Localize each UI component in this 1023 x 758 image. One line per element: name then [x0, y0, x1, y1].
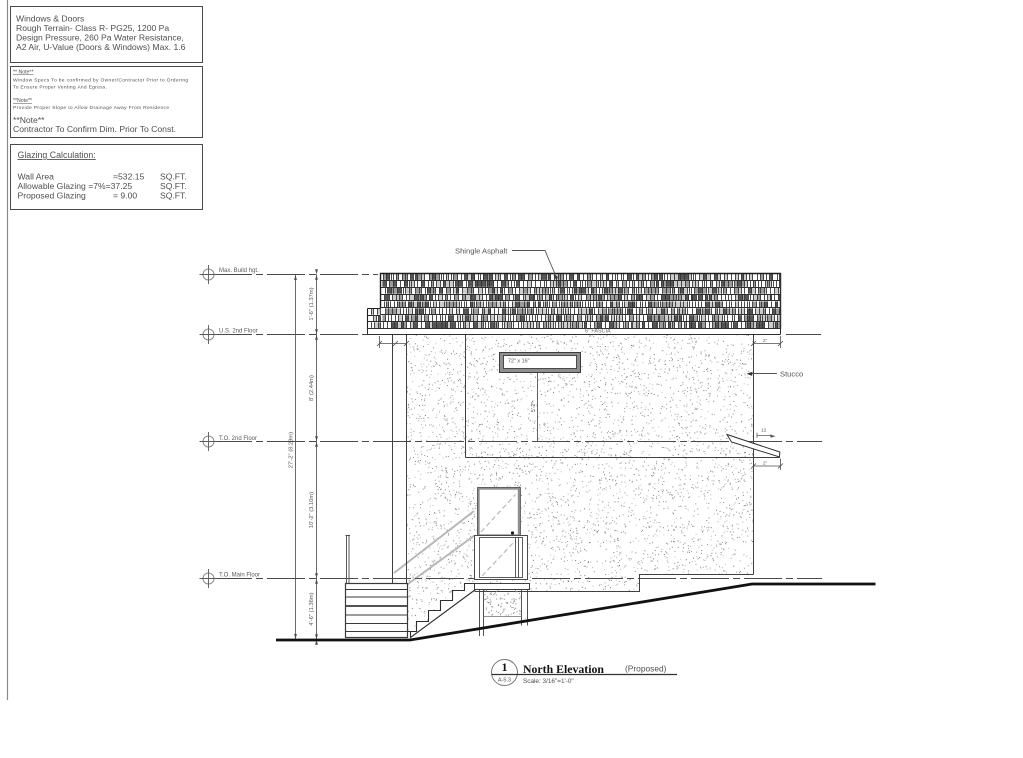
svg-text:Glazing Calculation:: Glazing Calculation:	[18, 150, 96, 160]
svg-text:** Note**: ** Note**	[13, 70, 33, 76]
svg-text:U.S. 2nd Floor: U.S. 2nd Floor	[219, 329, 258, 335]
svg-text:To Ensure Proper Venting And E: To Ensure Proper Venting And Egress.	[13, 85, 107, 91]
svg-text:A2 Air, U-Value (Doors & Windo: A2 Air, U-Value (Doors & Windows) Max. 1…	[16, 42, 186, 52]
svg-text:Windows & Doors: Windows & Doors	[16, 14, 84, 24]
svg-text:SQ.FT.: SQ.FT.	[160, 191, 187, 201]
svg-text:Proposed Glazing: Proposed Glazing	[18, 191, 87, 201]
svg-text:Design Pressure, 260 Pa Water: Design Pressure, 260 Pa Water Resistance…	[16, 33, 184, 43]
svg-text:Max. Build hgt.: Max. Build hgt.	[219, 268, 259, 274]
svg-text:4'-6" (1.36m): 4'-6" (1.36m)	[309, 592, 315, 625]
svg-text:Stucco: Stucco	[780, 370, 803, 379]
svg-text:SQ.FT.: SQ.FT.	[160, 181, 187, 191]
svg-text:8' (2.44m): 8' (2.44m)	[309, 375, 315, 401]
svg-text:5'-2": 5'-2"	[531, 402, 537, 412]
svg-text:72" x 16": 72" x 16"	[508, 359, 530, 365]
svg-text:North Elevation: North Elevation	[523, 662, 604, 676]
svg-text:(Proposed): (Proposed)	[625, 664, 667, 674]
svg-text:12: 12	[761, 428, 767, 434]
svg-text:Wall Area: Wall Area	[18, 172, 55, 182]
svg-text:T.O. 2nd Floor: T.O. 2nd Floor	[219, 436, 257, 442]
svg-text:27'-2" (8.29m): 27'-2" (8.29m)	[289, 432, 295, 468]
svg-text:Rough Terrain- Class R- PG25,: Rough Terrain- Class R- PG25, 1200 Pa	[16, 23, 169, 33]
svg-text:10'-2" (3.10m): 10'-2" (3.10m)	[309, 492, 315, 528]
svg-text:= 9.00: = 9.00	[113, 191, 137, 201]
svg-text:Allowable Glazing =7%=37.25: Allowable Glazing =7%=37.25	[18, 181, 133, 191]
svg-text:Shingle Asphalt: Shingle Asphalt	[455, 247, 508, 256]
svg-text:Contractor To Confirm Dim. Pri: Contractor To Confirm Dim. Prior To Cons…	[13, 124, 176, 134]
svg-text:Provide Proper Slope to Allow: Provide Proper Slope to Allow Drainage A…	[13, 105, 169, 111]
svg-text:Window Specs To be confirmed b: Window Specs To be confirmed by Owner/Co…	[13, 78, 189, 84]
svg-text:=532.15: =532.15	[113, 172, 145, 182]
svg-text:A-5.3: A-5.3	[498, 678, 511, 684]
svg-text:1: 1	[502, 660, 508, 674]
svg-text:6" FASCIA: 6" FASCIA	[585, 328, 611, 334]
svg-text:Scale: 3/16"=1'-0": Scale: 3/16"=1'-0"	[523, 678, 574, 685]
svg-text:SQ.FT.: SQ.FT.	[160, 172, 187, 182]
svg-text:**Note**: **Note**	[13, 98, 32, 104]
svg-text:1'-6" (1.37m): 1'-6" (1.37m)	[309, 287, 315, 320]
svg-text:2": 2"	[763, 338, 768, 343]
svg-text:T.O. Main Floor: T.O. Main Floor	[219, 572, 260, 578]
svg-text:2": 2"	[763, 461, 768, 466]
